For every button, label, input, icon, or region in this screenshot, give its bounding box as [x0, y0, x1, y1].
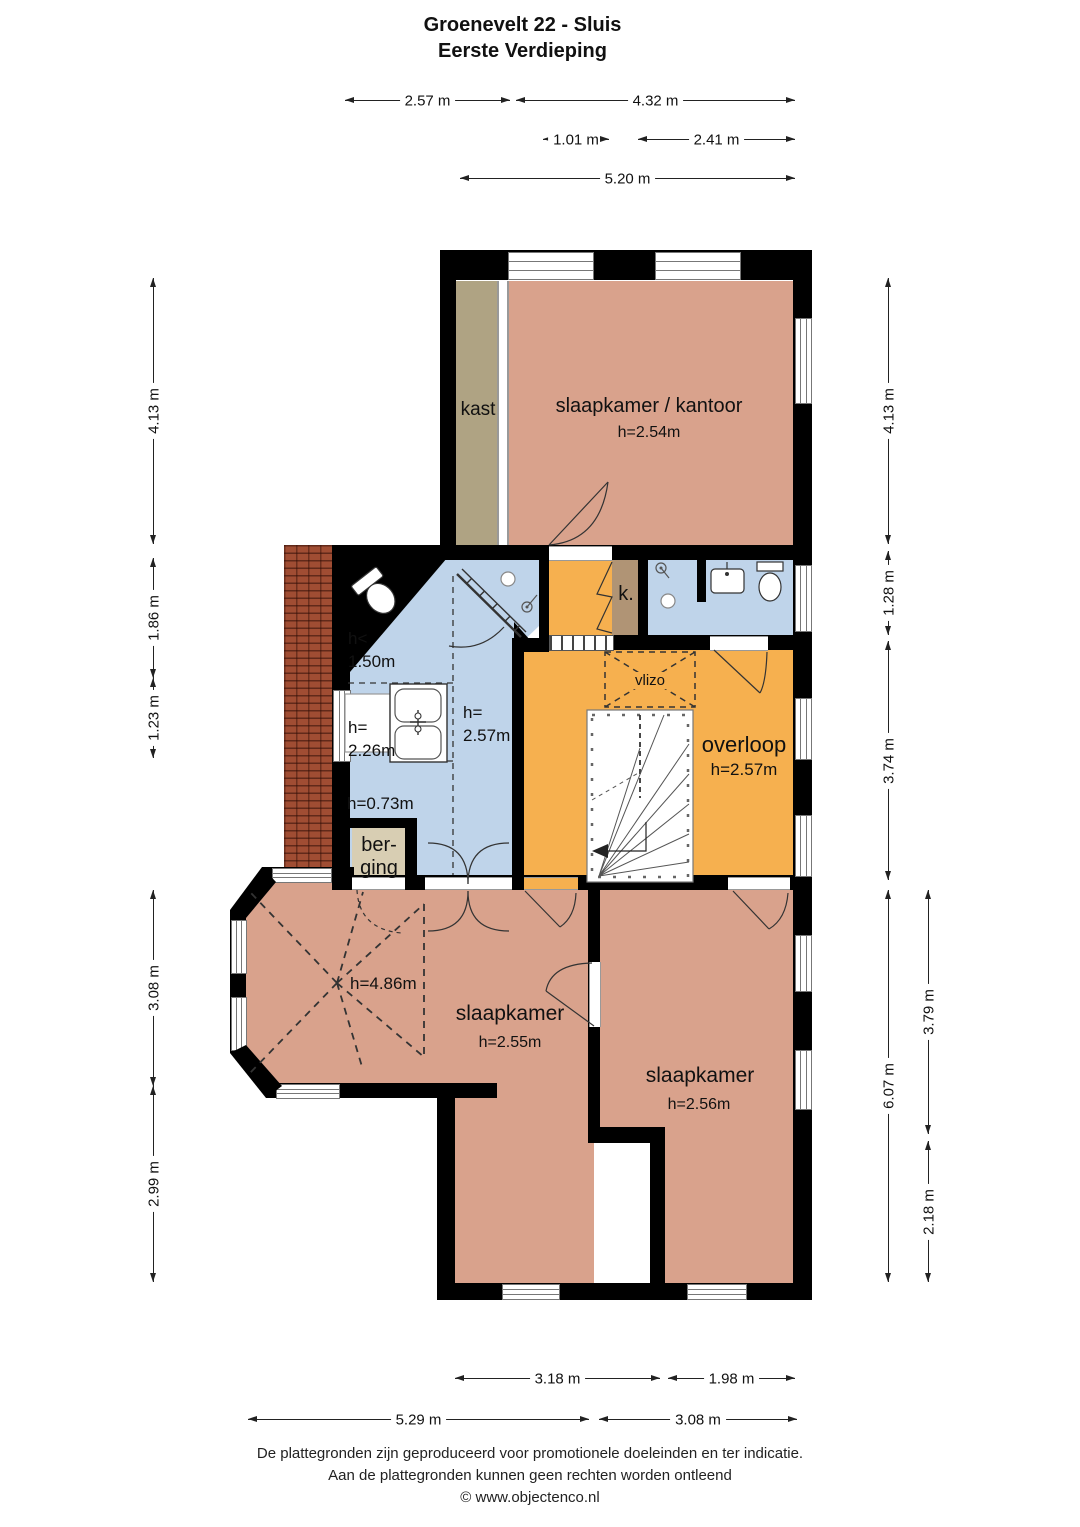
bedroom1-label: slaapkamer	[456, 1002, 565, 1026]
bath-height-257-1: h=	[463, 703, 482, 723]
overloop-height: h=2.57m	[711, 760, 778, 780]
disclaimer: De plattegronden zijn geproduceerd voor …	[0, 1443, 1060, 1509]
floor-plan-page: Groenevelt 22 - Sluis Eerste Verdieping …	[0, 0, 1080, 1527]
vlizo-label: vlizo	[632, 672, 668, 689]
bedroom2-height: h=2.56m	[668, 1096, 731, 1114]
bath-height-073: h=0.73m	[347, 794, 414, 814]
k-closet-label: k.	[618, 583, 634, 606]
small-bathroom-fixtures	[656, 562, 783, 608]
bath-height-257-2: 2.57m	[463, 726, 510, 746]
berging-label-2: ging	[360, 857, 398, 880]
disclaimer-line-3: © www.objectenco.nl	[0, 1487, 1060, 1509]
bedroom-office-label: slaapkamer / kantoor	[556, 395, 743, 418]
shower-icons	[501, 572, 537, 612]
bath-height-low-2: 1.50m	[348, 652, 395, 672]
toilet-icon	[759, 573, 781, 601]
plan-lineart	[0, 0, 1080, 1527]
berging-label-1: ber-	[361, 834, 397, 857]
bath-height-low-1: h<	[348, 629, 367, 649]
bedroom1-height: h=2.55m	[479, 1034, 542, 1052]
bath-height-226-2: 2.26m	[348, 741, 395, 761]
disclaimer-line-1: De plattegronden zijn geproduceerd voor …	[0, 1443, 1060, 1465]
bath-height-226-1: h=	[348, 718, 367, 738]
bedroom-office-height: h=2.54m	[618, 424, 681, 442]
staircase	[587, 710, 693, 882]
kast-label: kast	[461, 399, 496, 421]
overloop-label: overloop	[702, 732, 786, 757]
disclaimer-line-2: Aan de plattegronden kunnen geen rechten…	[0, 1465, 1060, 1487]
bedroom1-bay-height: h=4.86m	[350, 974, 417, 994]
bedroom2-label: slaapkamer	[646, 1064, 755, 1088]
